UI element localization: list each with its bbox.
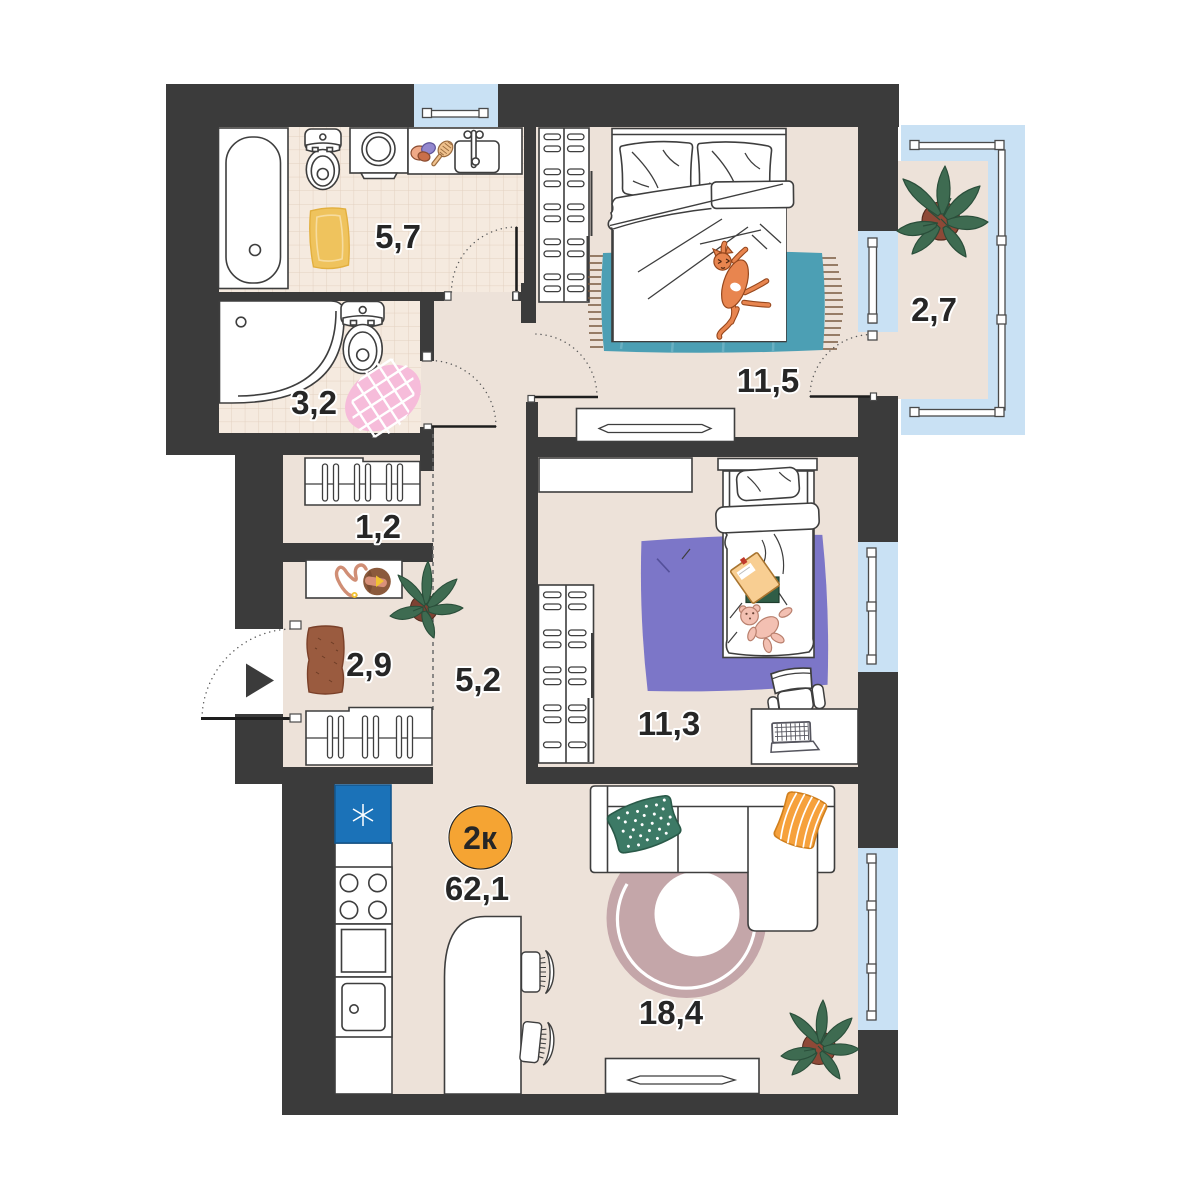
svg-text:5,7: 5,7 [375,218,421,255]
svg-text:11,5: 11,5 [737,362,799,399]
svg-text:5,2: 5,2 [455,661,501,698]
svg-text:2,9: 2,9 [346,646,392,683]
svg-text:3,2: 3,2 [291,384,337,421]
svg-text:1,2: 1,2 [355,508,401,545]
svg-text:62,1: 62,1 [445,870,509,907]
svg-text:2к: 2к [463,820,498,856]
svg-text:2,7: 2,7 [911,291,957,328]
svg-text:18,4: 18,4 [639,994,704,1031]
svg-text:11,3: 11,3 [638,705,700,742]
